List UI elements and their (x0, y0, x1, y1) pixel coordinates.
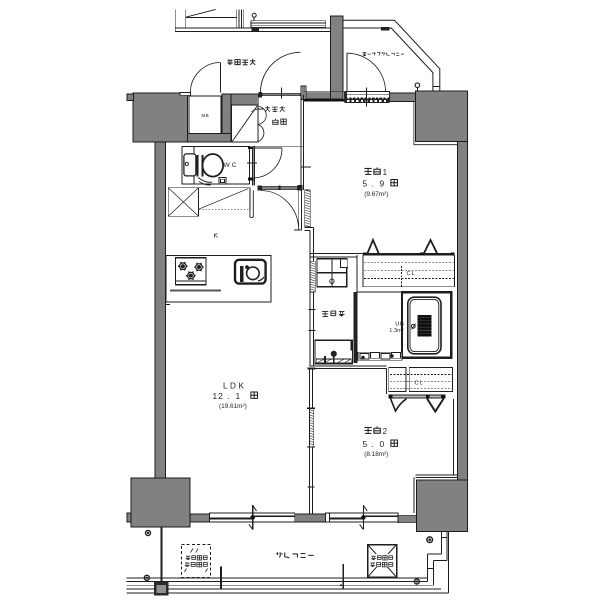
svg-text:LDK: LDK (223, 382, 246, 391)
svg-text:2: 2 (383, 427, 388, 436)
svg-text:(9.67m²): (9.67m²) (364, 191, 388, 198)
svg-text:1: 1 (236, 391, 241, 401)
svg-text:0: 0 (380, 439, 385, 449)
svg-text:CL: CL (415, 381, 424, 387)
svg-text:9: 9 (380, 179, 385, 189)
svg-text:(8.18m²): (8.18m²) (364, 451, 388, 458)
svg-text:WC: WC (224, 162, 239, 169)
svg-text:1: 1 (383, 168, 388, 177)
svg-text:5: 5 (363, 439, 368, 449)
svg-text:.: . (228, 391, 230, 401)
svg-text:1.3m²: 1.3m² (389, 328, 403, 334)
svg-text:(19.61m²): (19.61m²) (219, 403, 247, 410)
svg-text:MB: MB (202, 113, 210, 118)
svg-text:12: 12 (213, 391, 224, 401)
svg-text:CL: CL (407, 271, 416, 277)
svg-text:.: . (372, 179, 374, 189)
svg-text:.: . (372, 439, 374, 449)
svg-text:UB: UB (395, 321, 404, 327)
svg-text:5: 5 (363, 179, 368, 189)
svg-text:K: K (214, 233, 219, 240)
